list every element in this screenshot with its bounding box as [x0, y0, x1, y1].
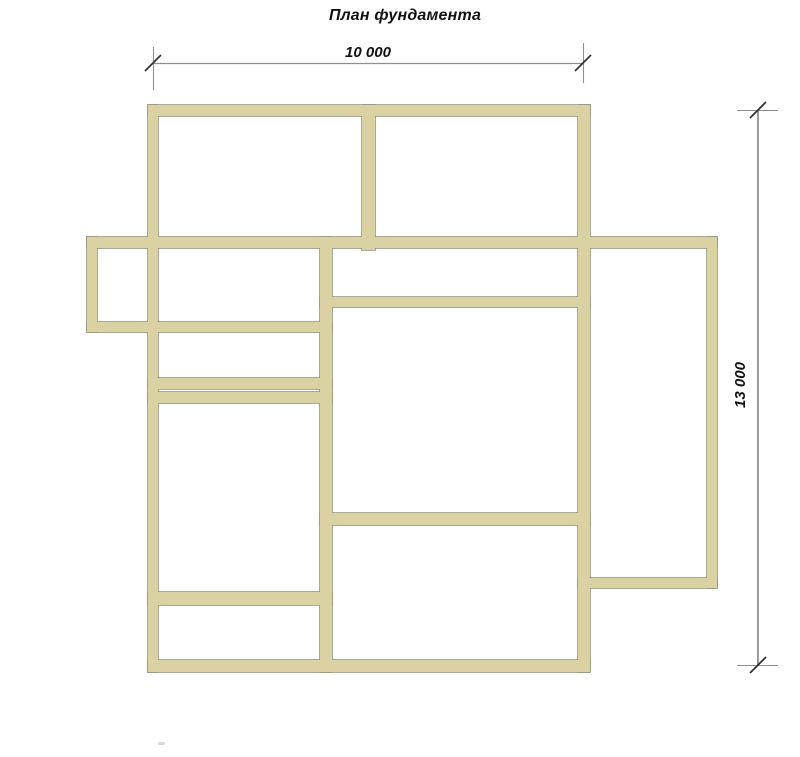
plan-svg: [0, 0, 800, 757]
wall-right-extension-bottom: [578, 578, 717, 588]
wall-big-room-bottom: [320, 513, 590, 525]
width-dimension-label: 10 000: [318, 44, 418, 61]
wall-top-divider: [362, 105, 375, 250]
wall-right-room-bottom: [320, 297, 590, 307]
wall-left: [148, 105, 158, 672]
wall-left-extension-left: [87, 237, 97, 332]
walls-fill-layer: [87, 105, 717, 672]
height-dimension-label: 13 000: [732, 345, 752, 425]
wall-right: [578, 105, 590, 672]
foundation-plan-drawing: План фундамента 10 000 13 000: [0, 0, 800, 757]
wall-right-extension-right: [707, 237, 717, 588]
wall-left-extension-bottom: [87, 322, 332, 332]
wall-mid: [87, 237, 717, 248]
wall-tall-room-top: [148, 392, 332, 403]
wall-middle-vertical: [320, 237, 332, 672]
wall-tall-room-bottom: [148, 592, 332, 605]
stray-mark: [158, 742, 165, 745]
wall-small-room-bottom: [148, 378, 332, 389]
page-title: План фундамента: [305, 7, 505, 25]
wall-bottom: [148, 660, 590, 672]
